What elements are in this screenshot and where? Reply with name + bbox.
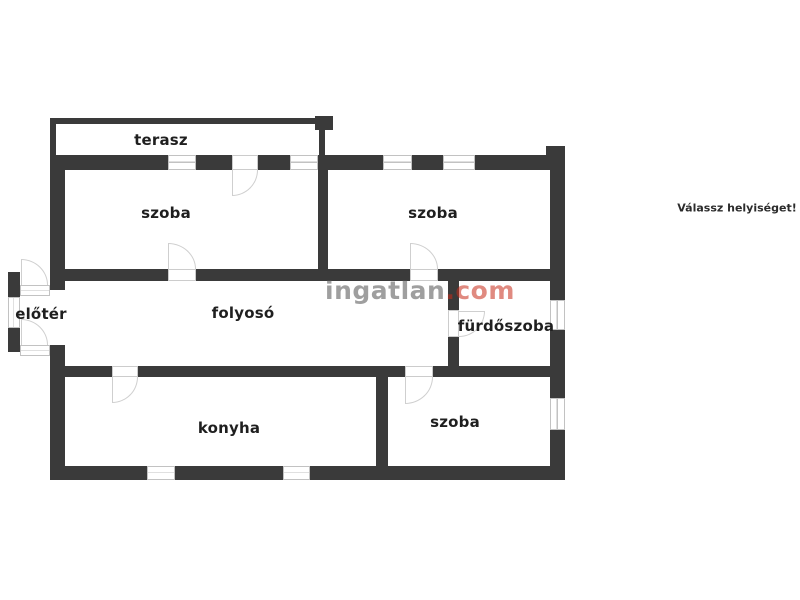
wall-segment <box>550 155 565 300</box>
room-label-konyha: konyha <box>198 419 260 437</box>
wall-segment <box>8 272 20 297</box>
wall-segment <box>175 466 283 480</box>
wall-segment <box>318 170 328 269</box>
wall-segment <box>310 466 565 480</box>
floorplan-canvas: terasz szoba szoba előtér folyosó fürdős… <box>0 0 800 600</box>
wall-segment <box>50 155 65 290</box>
wall-segment <box>376 377 388 466</box>
room-label-terasz: terasz <box>134 131 188 149</box>
window <box>283 466 310 480</box>
window <box>550 398 565 430</box>
wall-segment <box>318 155 383 170</box>
room-label-furdoszoba: fürdőszoba <box>458 317 554 335</box>
wall-segment <box>50 466 147 480</box>
room-label-eloter: előtér <box>15 305 67 323</box>
window <box>290 155 318 170</box>
wall-segment <box>550 330 565 398</box>
door-swing-arc <box>21 259 48 285</box>
room-label-szoba-bottom: szoba <box>430 413 480 431</box>
wall-segment <box>50 345 65 480</box>
room-picker-prompt: Válassz helyiséget! <box>677 202 796 215</box>
window <box>443 155 475 170</box>
wall-segment <box>438 269 550 281</box>
window <box>168 155 196 170</box>
door-opening-konyha <box>112 366 138 377</box>
wall-segment <box>8 328 20 352</box>
wall-segment <box>448 337 459 366</box>
wall-segment <box>258 155 290 170</box>
wall-segment <box>433 366 550 377</box>
wall-segment <box>50 155 168 170</box>
wall-segment <box>448 281 459 310</box>
wall-terasz-top <box>50 118 331 124</box>
wall-terasz-left <box>50 118 56 155</box>
wall-segment <box>65 366 112 377</box>
room-label-szoba-top-right: szoba <box>408 204 458 222</box>
window <box>383 155 412 170</box>
door-opening-eloter-bottom <box>20 345 50 356</box>
wall-segment <box>65 269 168 281</box>
room-label-szoba-top-left: szoba <box>141 204 191 222</box>
room-area-folyoso[interactable] <box>65 281 448 366</box>
window <box>147 466 175 480</box>
wall-segment <box>138 366 405 377</box>
door-opening-eloter-top <box>20 285 50 296</box>
door-opening-terasz <box>232 155 258 170</box>
wall-segment <box>196 155 232 170</box>
wall-terasz-corner-block <box>315 116 333 130</box>
door-opening <box>168 269 196 281</box>
wall-segment <box>196 269 410 281</box>
door-opening <box>405 366 433 377</box>
room-label-folyoso: folyosó <box>212 304 275 322</box>
wall-segment <box>412 155 443 170</box>
door-opening <box>410 269 438 281</box>
